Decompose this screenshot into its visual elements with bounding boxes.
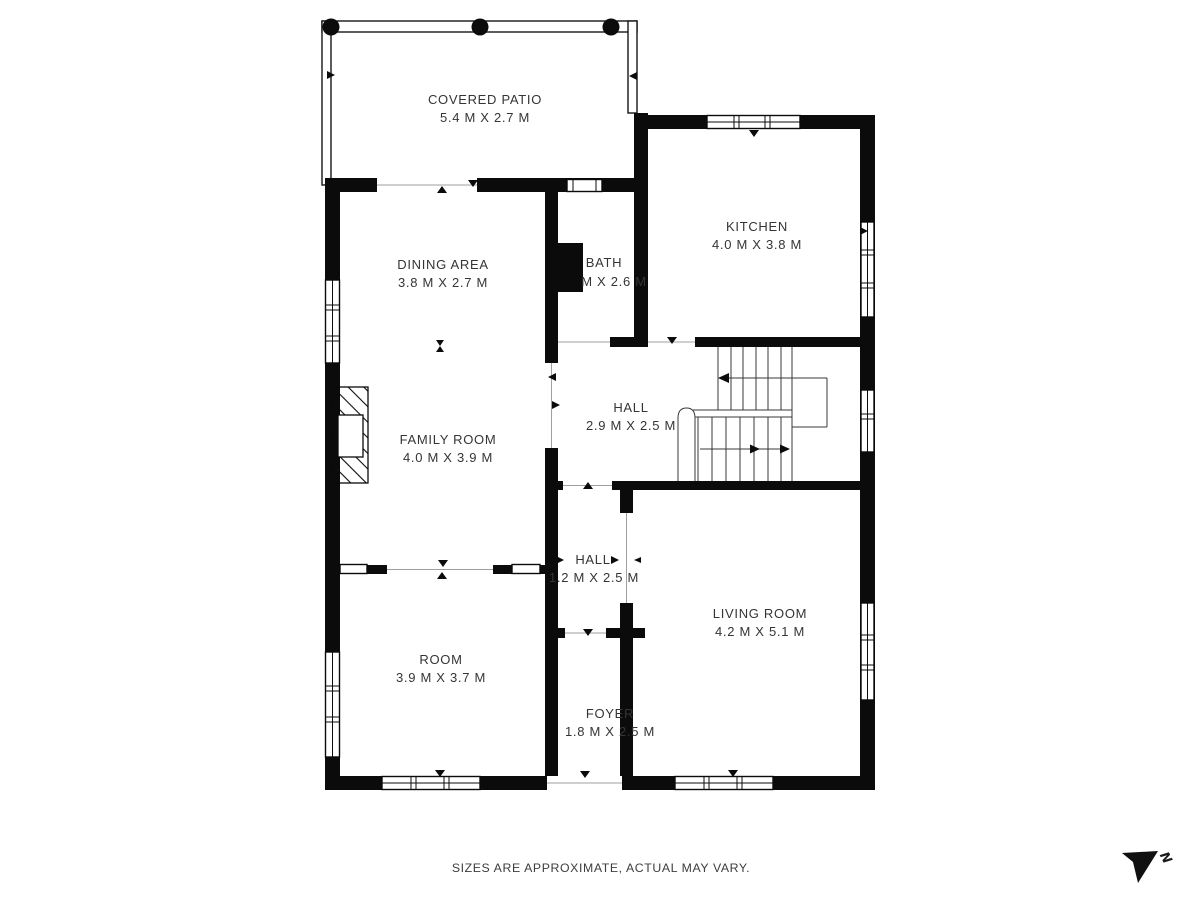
bath-fixture-block [557,243,583,292]
wall-kitchen-bath-left [634,113,648,347]
bath-fixture-block [548,271,557,292]
room-dims-hall-upper: 2.9 M X 2.5 M [586,418,676,433]
floor-plan-page: COVERED PATIO 5.4 M X 2.7 M KITCHEN 4.0 … [0,0,1200,900]
staircase [678,347,827,481]
room-label-kitchen: KITCHEN [726,219,788,234]
stair-arrow-down-icon [750,445,760,454]
wall-foyer-top-right [606,628,645,638]
room-label-room: ROOM [419,652,462,667]
room-dims-dining-area: 3.8 M X 2.7 M [398,275,488,290]
room-dims-bath: M X 2.6 M [581,274,647,289]
floor-plan-svg: COVERED PATIO 5.4 M X 2.7 M KITCHEN 4.0 … [0,0,1200,900]
room-dims-living-room: 4.2 M X 5.1 M [715,624,805,639]
stair-arrow-down-icon [780,445,790,454]
compass: N [1122,850,1174,883]
measure-ticks [435,130,868,778]
wall-kitchen-bottom [610,337,861,347]
room-dims-family-room: 4.0 M X 3.9 M [403,450,493,465]
footer-disclaimer: SIZES ARE APPROXIMATE, ACTUAL MAY VARY. [452,861,750,875]
room-dims-hall-lower: 1.2 M X 2.5 M [549,570,639,585]
window [512,565,540,574]
fireplace-firebox [338,415,363,457]
room-dims-room: 3.9 M X 3.7 M [396,670,486,685]
wall-foyer-top-left [545,628,565,638]
patio-post [603,19,620,36]
measure-tick [556,556,564,564]
wall-hall-right-upper [620,481,633,513]
compass-arrow-icon [1122,851,1158,883]
room-dims-kitchen: 4.0 M X 3.8 M [712,237,802,252]
patio-post [323,19,340,36]
room-label-foyer: FOYER [586,706,634,721]
measure-tick [436,340,444,346]
room-label-bath: BATH [586,255,623,270]
window [340,565,367,574]
fireplace [333,387,368,483]
room-dims-foyer: 1.8 M X 2.5 M [565,724,655,739]
room-label-family-room: FAMILY ROOM [400,432,497,447]
window [567,180,602,192]
room-label-covered-patio: COVERED PATIO [428,92,542,107]
measure-tick [436,346,444,352]
room-dims-covered-patio: 5.4 M X 2.7 M [440,110,530,125]
measure-tick [611,556,619,564]
room-label-hall-lower: HALL [575,552,610,567]
room-label-dining-area: DINING AREA [397,257,489,272]
measure-tick [634,557,641,563]
room-label-living-room: LIVING ROOM [713,606,807,621]
patio-post [472,19,489,36]
patio-wall-left [322,21,331,185]
patio-wall-right [628,21,637,113]
stair-arrow-up-icon [718,373,729,383]
room-label-hall-upper: HALL [613,400,648,415]
stair-newel [678,408,695,481]
compass-north-label: N [1156,850,1174,867]
measure-tick [749,130,759,137]
